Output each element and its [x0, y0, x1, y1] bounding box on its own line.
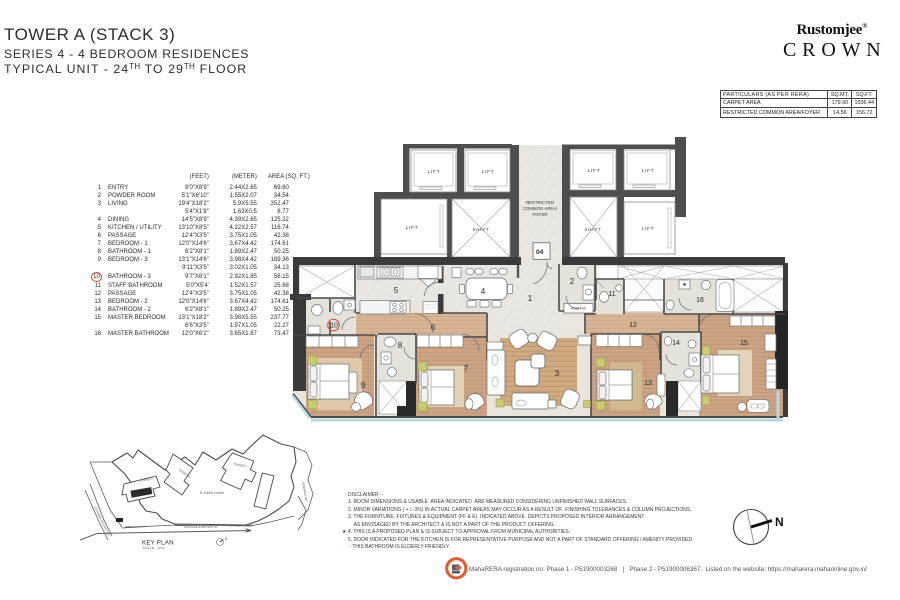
- svg-text:N: N: [775, 515, 784, 529]
- svg-text:16: 16: [696, 297, 704, 304]
- svg-text:6: 6: [431, 323, 436, 332]
- svg-text:LIFT: LIFT: [482, 169, 495, 174]
- svg-text:04: 04: [536, 249, 544, 256]
- svg-text:N: N: [225, 537, 228, 541]
- svg-text:8: 8: [398, 341, 403, 350]
- svg-text:LIFT: LIFT: [642, 168, 655, 173]
- svg-text:SENAPATI RD: SENAPATI RD: [301, 481, 308, 502]
- svg-text:LIFT: LIFT: [406, 225, 419, 230]
- svg-text:LIFT: LIFT: [428, 169, 441, 174]
- svg-text:1: 1: [528, 294, 533, 303]
- svg-text:SHAFT: SHAFT: [584, 227, 601, 232]
- svg-text:15: 15: [740, 340, 748, 347]
- svg-text:9: 9: [361, 381, 366, 390]
- svg-text:SCALE - NTS: SCALE - NTS: [143, 546, 165, 550]
- svg-text:12: 12: [629, 322, 637, 329]
- svg-text:14: 14: [672, 340, 680, 347]
- svg-text:4: 4: [481, 287, 486, 296]
- svg-text:COMMON AREA/: COMMON AREA/: [523, 206, 558, 211]
- svg-text:FOYER: FOYER: [532, 212, 547, 217]
- svg-text:10: 10: [330, 323, 338, 330]
- svg-text:SHAFT: SHAFT: [472, 227, 489, 232]
- svg-text:DR.ANNIE BESANT RD: DR.ANNIE BESANT RD: [93, 506, 111, 538]
- svg-text:LIFT: LIFT: [642, 226, 655, 231]
- svg-text:STORAGE: STORAGE: [571, 307, 587, 311]
- svg-text:7: 7: [464, 364, 469, 373]
- svg-text:2: 2: [570, 277, 575, 286]
- svg-text:LIFT: LIFT: [588, 168, 601, 173]
- svg-text:RESTRICTED: RESTRICTED: [526, 200, 554, 205]
- svg-text:GOKHALE ROAD SOUTH: GOKHALE ROAD SOUTH: [184, 525, 217, 529]
- svg-text:E-Deck Level: E-Deck Level: [200, 490, 224, 495]
- svg-text:13: 13: [644, 380, 652, 387]
- svg-text:5: 5: [394, 286, 399, 295]
- svg-text:11: 11: [608, 291, 615, 298]
- svg-text:3: 3: [555, 369, 560, 378]
